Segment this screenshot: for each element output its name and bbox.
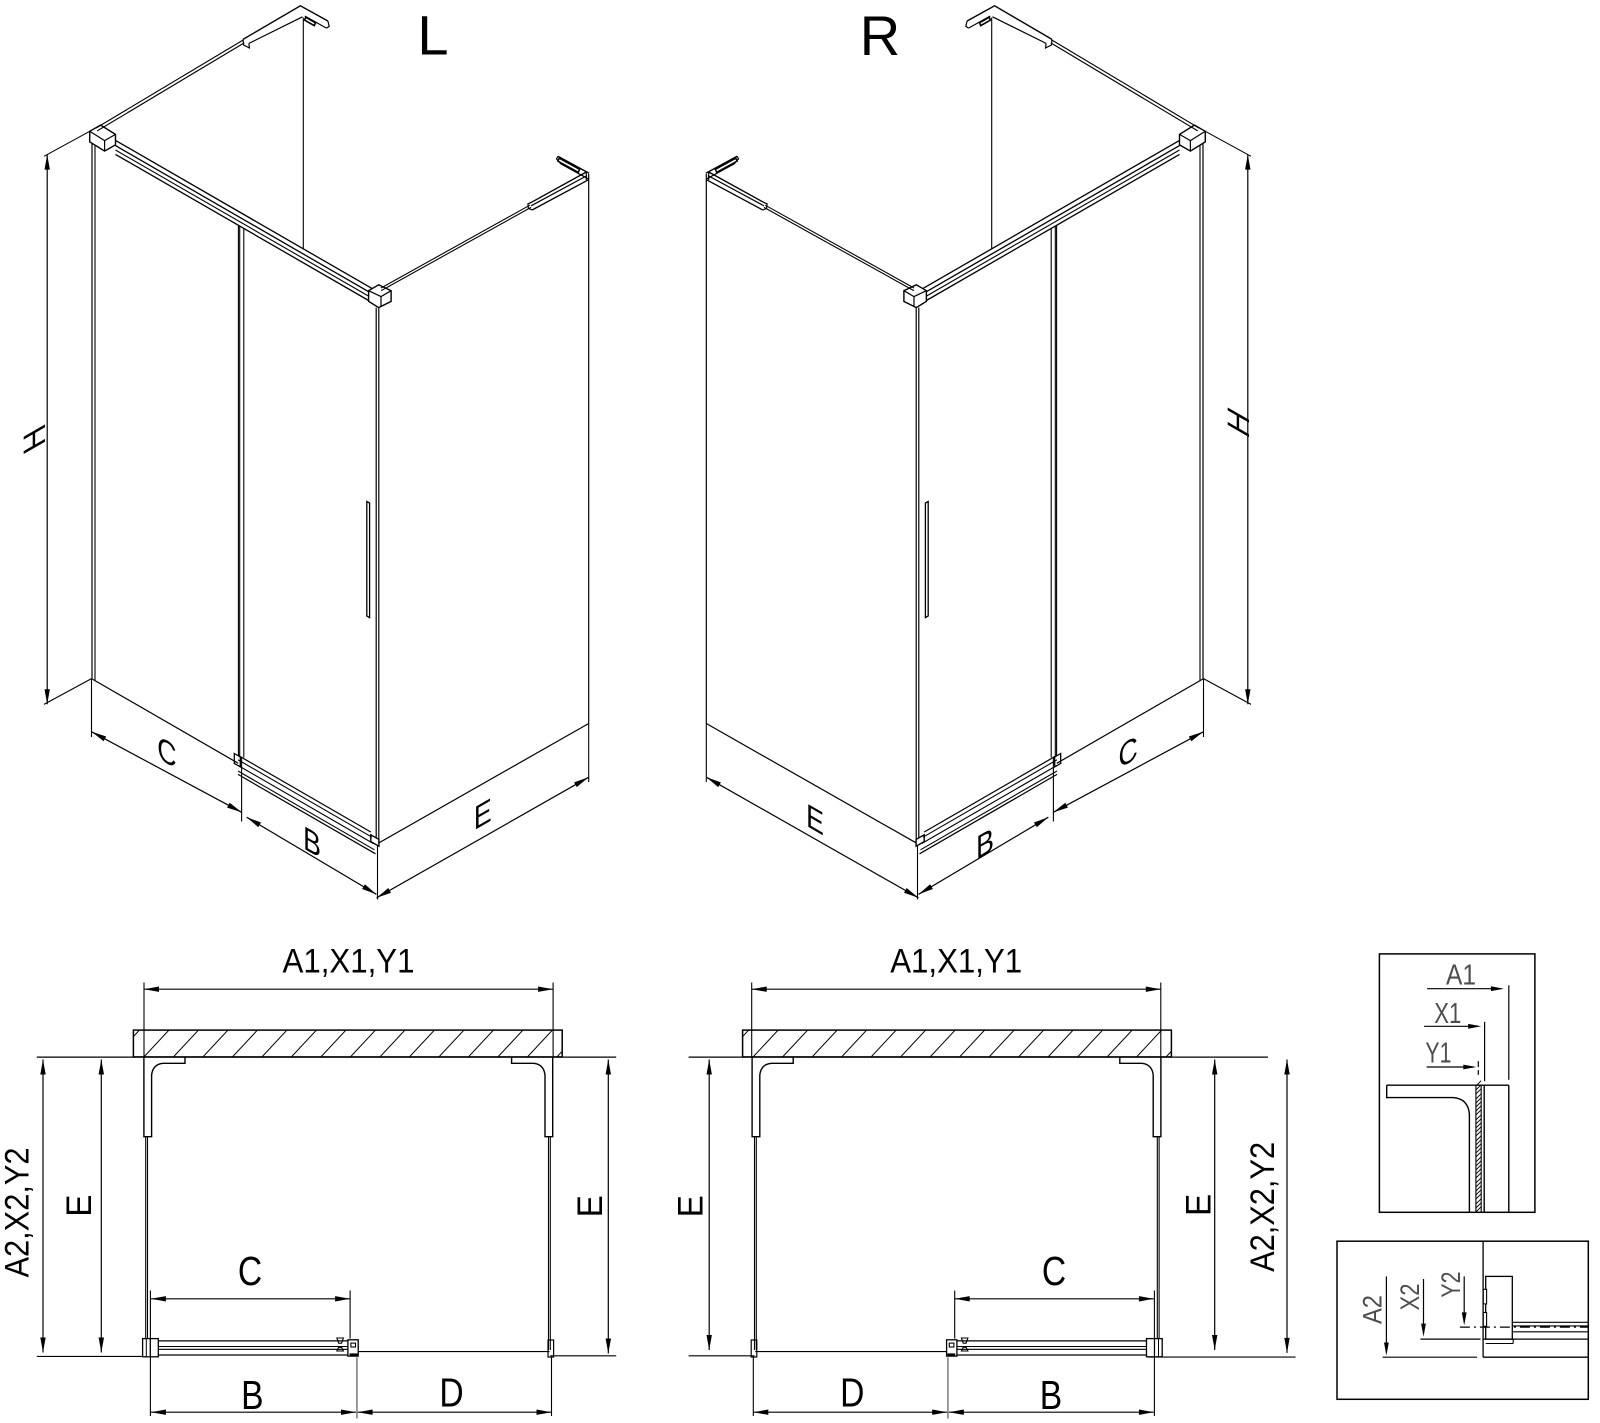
svg-text:A2,X2,Y2: A2,X2,Y2 <box>0 1148 37 1278</box>
svg-text:C: C <box>1042 1248 1066 1294</box>
svg-text:A1,X1,Y1: A1,X1,Y1 <box>890 943 1022 981</box>
svg-text:E: E <box>672 1195 711 1217</box>
svg-text:A1: A1 <box>1446 960 1476 992</box>
svg-text:B: B <box>1040 1372 1062 1418</box>
svg-text:E: E <box>60 1195 99 1217</box>
svg-text:L: L <box>417 4 448 67</box>
svg-text:X1: X1 <box>1434 998 1461 1030</box>
svg-text:Y2: Y2 <box>1436 1272 1466 1298</box>
svg-text:Y1: Y1 <box>1425 1038 1451 1070</box>
svg-text:C: C <box>238 1248 262 1294</box>
svg-text:X2: X2 <box>1395 1284 1425 1311</box>
svg-text:E: E <box>1180 1194 1219 1216</box>
svg-text:D: D <box>840 1369 864 1415</box>
svg-text:E: E <box>474 790 492 837</box>
svg-text:E: E <box>571 1195 610 1217</box>
svg-text:H: H <box>1222 402 1256 444</box>
svg-text:B: B <box>303 818 321 865</box>
svg-text:A2,X2,Y2: A2,X2,Y2 <box>1244 1142 1282 1272</box>
svg-text:D: D <box>439 1369 463 1415</box>
svg-text:B: B <box>976 820 994 867</box>
svg-text:A2: A2 <box>1358 1295 1388 1324</box>
svg-text:R: R <box>860 4 900 67</box>
svg-text:A1,X1,Y1: A1,X1,Y1 <box>283 943 415 981</box>
svg-text:B: B <box>241 1372 263 1418</box>
